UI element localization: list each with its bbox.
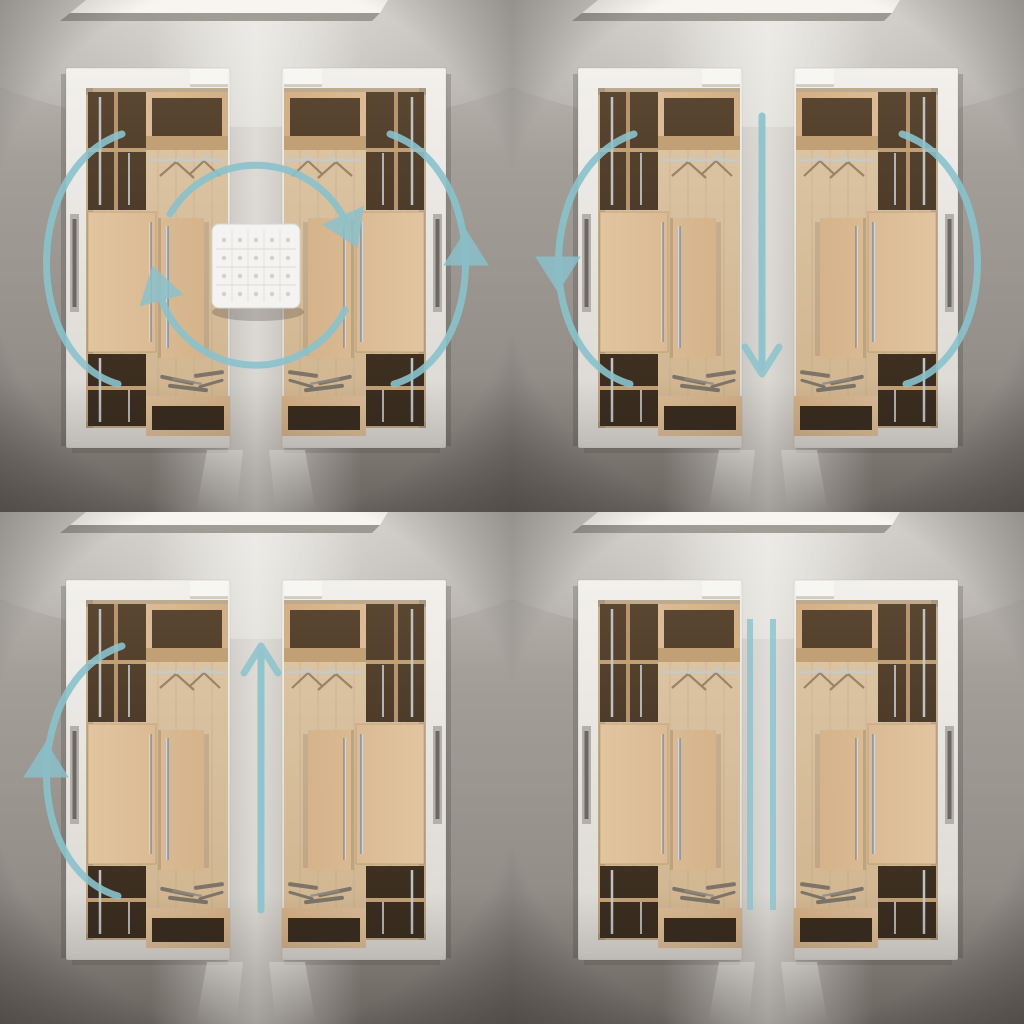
closet-circulation-diagram <box>0 0 1024 1024</box>
closet-plan-render <box>0 512 512 1024</box>
panel-top-right <box>512 0 1024 512</box>
panel-top-left <box>0 0 512 512</box>
panel-bottom-right <box>512 512 1024 1024</box>
closet-plan-render <box>0 0 512 512</box>
panel-bottom-left <box>0 512 512 1024</box>
closet-plan-render <box>512 0 1024 512</box>
closet-plan-render <box>512 512 1024 1024</box>
